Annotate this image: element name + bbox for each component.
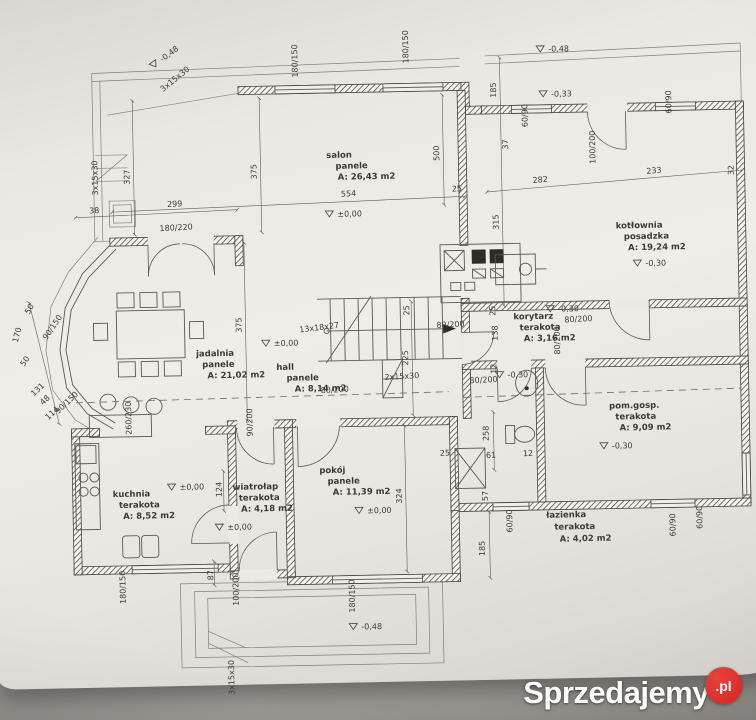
level-symbol [215, 524, 223, 530]
dimension-label: 260/230 [124, 402, 134, 435]
room-floor: panele [286, 373, 319, 384]
room-area: A: 8,52 m2 [123, 511, 175, 522]
room-label-salon: salon panele A: 26,43 m2 [326, 150, 395, 183]
room-area: A: 4,18 m2 [241, 504, 293, 515]
room-floor: terakota [615, 412, 656, 423]
dimension-label: 80/200 [564, 314, 593, 325]
dimension-label: 60/90 [505, 509, 514, 532]
dimension-label: 48 [38, 393, 52, 407]
level-label: -0,30 [645, 258, 666, 267]
dimension-label: 60/90 [520, 104, 529, 127]
chair [140, 292, 157, 307]
room-name: łazienka [545, 510, 586, 521]
level-label: ±0,00 [180, 482, 205, 491]
dimension-label: 180/150 [347, 579, 357, 612]
room-name: jadalnia [195, 349, 235, 360]
dimension-label: 170 [11, 326, 23, 343]
dimension-label: 12 [489, 364, 498, 374]
chair [141, 361, 158, 376]
dimension-label: 375 [249, 164, 258, 179]
room-area: A: 3,16 m2 [524, 333, 576, 344]
level-label: -0,30 [507, 370, 528, 379]
level-label: -0,30 [558, 304, 579, 313]
watermark-brand: Sprzedajemy [523, 667, 709, 708]
dimension-label: 100/200 [588, 131, 598, 164]
room-area: A: 11,39 m2 [333, 487, 391, 498]
room-label-pokoj: pokój panele A: 11,39 m2 [319, 464, 390, 498]
room-name: kotłownia [616, 221, 663, 232]
dimension-label: 327 [122, 169, 131, 184]
dimension-label: 87 [206, 570, 215, 580]
hob-burner [90, 487, 99, 496]
stairs-label: 13x18x27 [299, 321, 340, 335]
room-label-pomgosp: pom.gosp. terakota A: 9,09 m2 [609, 400, 671, 433]
dimension-label: 554 [341, 189, 357, 199]
level-label: -0,33 [551, 89, 572, 98]
level-symbol [355, 507, 363, 513]
room-area: A: 21,02 m2 [207, 370, 265, 381]
level-label: -0,48 [361, 622, 382, 631]
level-symbol [633, 260, 641, 266]
watermark-tld: .pl [715, 678, 731, 694]
dimension-label: 80/200 [553, 326, 563, 354]
dimension-label: 180/150 [290, 44, 300, 77]
room-label-kotlownia: kotłownia posadzka A: 19,24 m2 [616, 220, 686, 253]
hob-burner [90, 473, 99, 482]
dimension-label: 375 [234, 317, 243, 332]
photo-of-floor-plan: salon panele A: 26,43 m2 kotłownia posad… [0, 0, 756, 720]
dimension-label: 258 [481, 426, 490, 441]
chair [117, 293, 134, 308]
stairs-label: 3x15x30 [159, 65, 192, 94]
dimension-label: 32 [727, 165, 736, 175]
level-symbol [262, 340, 270, 346]
dimension-label: 80/200 [320, 385, 349, 396]
toilet-tank [505, 425, 514, 443]
level-symbol [539, 91, 547, 97]
dimension-label: 12 [523, 449, 534, 459]
dimension-label: 180/150 [118, 571, 128, 604]
room-name: kuchnia [113, 489, 151, 500]
room-name: pom.gosp. [609, 401, 659, 412]
level-label: ±0,00 [367, 506, 392, 515]
level-symbol [536, 46, 544, 52]
level-symbol [168, 484, 176, 490]
room-name: korytarz [513, 312, 553, 323]
floorplan-svg: salon panele A: 26,43 m2 kotłownia posad… [0, 0, 756, 720]
level-symbol [325, 211, 333, 217]
dimension-label: 37 [501, 139, 510, 149]
dimension-label: 90/200 [245, 408, 255, 436]
watermark-pl-badge: .pl [705, 667, 742, 704]
room-floor: panele [327, 476, 360, 487]
dimension-label: 25 [440, 448, 451, 458]
dimension-label: 90/150 [41, 313, 64, 341]
dimension-label: 80/200 [469, 375, 498, 386]
level-label: -0,30 [612, 441, 633, 450]
dimension-label: 80/200 [436, 319, 465, 330]
dimension-label: 225 [401, 350, 410, 365]
room-name: wiatrołap [233, 482, 279, 493]
room-label-jadalnia: jadalnia panele A: 21,02 m2 [195, 348, 265, 381]
dimension-label: 25 [402, 305, 411, 315]
level-label: -0,48 [548, 44, 569, 53]
room-area: A: 4,02 m2 [560, 534, 612, 545]
dimension-label: 315 [491, 214, 500, 229]
room-name: salon [326, 151, 352, 161]
dimension-label: 180/150 [401, 30, 411, 63]
level-label: ±0,00 [227, 522, 252, 531]
dimension-label: 282 [532, 175, 548, 185]
room-floor: terakota [554, 522, 595, 533]
dimension-label: 180/220 [159, 222, 193, 233]
room-floor: terakota [119, 500, 160, 511]
level-symbol [149, 60, 159, 70]
room-label-kuchnia: kuchnia terakota A: 8,52 m2 [113, 489, 175, 522]
dimension-label: 185 [489, 82, 498, 97]
level-label: ±0,00 [337, 209, 362, 218]
dimension-label: 500 [432, 146, 441, 161]
dimension-label: 61 [486, 450, 497, 460]
chimney-block [440, 243, 521, 303]
room-label-lazienka: łazienka terakota A: 4,02 m2 [545, 510, 612, 545]
dimension-label: 60/90 [668, 513, 677, 536]
room-floor: panele [335, 161, 368, 172]
dimension-label: 25 [452, 184, 463, 194]
chair [163, 292, 180, 307]
entry-porch [180, 579, 444, 668]
dimension-label: 38 [89, 206, 100, 216]
dimension-label: 60/90 [664, 90, 673, 113]
dimension-label: 57 [481, 491, 490, 501]
double-sink [123, 536, 140, 558]
room-name: pokój [319, 465, 345, 477]
dimension-label: 324 [395, 488, 404, 503]
room-area: A: 19,24 m2 [628, 242, 686, 253]
room-floor: terakota [239, 493, 280, 504]
level-markers: ±0,00±0,00±0,00±0,00±0,00-0,30-0,30-0,30… [149, 35, 673, 635]
floor-plan: salon panele A: 26,43 m2 kotłownia posad… [5, 24, 754, 699]
room-name: hall [276, 363, 294, 373]
chair [189, 321, 203, 338]
dimension-label: 50 [18, 354, 31, 367]
dimension-label: 25 [488, 306, 497, 316]
room-label-wiatrolap: wiatrołap terakota A: 4,18 m2 [233, 482, 293, 515]
dimension-label: 60/90 [695, 506, 704, 529]
dimension-label: 100/200 [231, 572, 241, 605]
dining-table [116, 310, 185, 359]
level-symbol [349, 623, 357, 629]
level-label: -0,48 [158, 44, 180, 63]
stairs-label: 2x15x30 [384, 371, 419, 382]
dimension-label: 50 [23, 302, 36, 315]
dimension-label: 233 [646, 166, 662, 176]
dimension-label: 299 [167, 199, 183, 209]
room-floor: panele [202, 360, 235, 371]
room-area: A: 9,09 m2 [619, 422, 671, 433]
level-symbol [600, 443, 608, 449]
dimension-label: 124 [215, 482, 224, 497]
chair [164, 361, 181, 376]
watermark: Sprzedajemy .pl [523, 667, 742, 708]
stairs-label: 3x15x30 [90, 160, 100, 195]
dimension-label: 185 [478, 541, 487, 556]
room-area: A: 26,43 m2 [338, 172, 396, 183]
chair [118, 362, 135, 377]
chair [93, 323, 107, 340]
dimension-label: 138 [491, 325, 500, 340]
toilet [514, 426, 534, 442]
stairs-label: 3x15x30 [227, 660, 237, 695]
level-label: ±0,00 [274, 339, 299, 348]
room-floor: posadzka [624, 231, 670, 242]
